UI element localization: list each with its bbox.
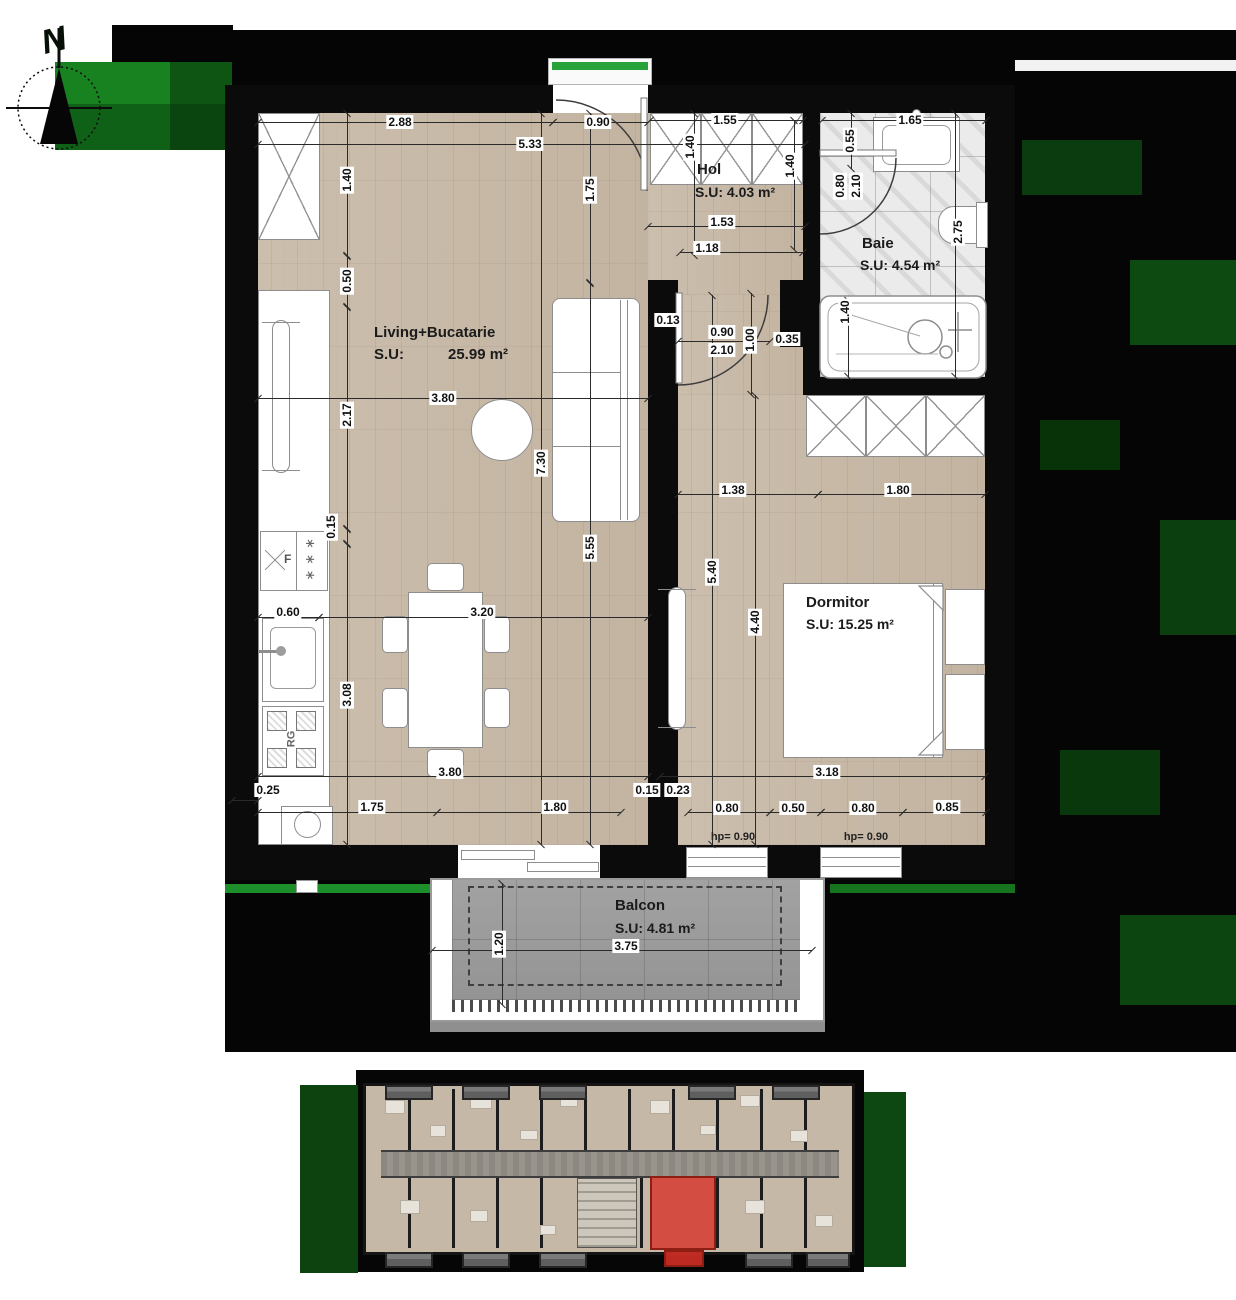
dimension-label: 0.80 <box>713 801 740 815</box>
overview-balcony <box>806 1252 850 1268</box>
room-label-baie: Baie <box>862 235 894 252</box>
faucet-icon <box>276 646 286 656</box>
overview-balcony <box>745 1252 793 1268</box>
overview-wall <box>540 1178 543 1248</box>
overview-furniture <box>815 1215 833 1227</box>
entrance-opening <box>553 85 648 113</box>
dimension-label: 1.38 <box>719 483 746 497</box>
overview-balcony <box>539 1085 587 1100</box>
bed-headboard-line <box>933 584 934 757</box>
overview-furniture <box>470 1210 488 1222</box>
dimension-label: 1.53 <box>708 215 735 229</box>
overview-furniture <box>385 1100 405 1114</box>
overview-wall <box>496 1178 499 1248</box>
chair <box>484 688 510 728</box>
nightstand <box>945 589 985 665</box>
overview-balcony <box>462 1252 510 1268</box>
dimension-label: 3.20 <box>468 605 495 619</box>
bedroom-wardrobe <box>926 395 985 457</box>
chair <box>427 563 464 591</box>
dimension-label: 0.50 <box>340 267 354 294</box>
overview-balcony <box>688 1085 736 1100</box>
sofa-cushion-line <box>553 372 621 373</box>
radiator <box>668 587 686 730</box>
dimension-label: 0.80 <box>833 172 847 199</box>
overview-balcony <box>772 1085 820 1100</box>
sliding-door-panel <box>461 850 535 860</box>
window-glass-line <box>688 857 766 858</box>
toilet-tank <box>976 202 988 248</box>
chair <box>382 688 408 728</box>
background-artifact <box>1120 915 1236 1005</box>
dimension-label: 2.10 <box>708 343 735 357</box>
background-artifact <box>864 1092 906 1267</box>
window <box>820 847 902 878</box>
overview-staircase <box>577 1178 637 1248</box>
overview-furniture <box>700 1125 716 1135</box>
room-area-baie: S.U: 4.54 m² <box>860 257 940 273</box>
sofa-backrest-line <box>627 300 628 520</box>
overview-wall <box>452 1089 455 1152</box>
window-glass-line <box>822 866 900 867</box>
radiator <box>272 320 290 473</box>
dimension-label: 2.10 <box>849 172 863 199</box>
overview-highlighted-balcony <box>664 1250 704 1267</box>
dimension-line <box>437 812 621 813</box>
overview-furniture <box>540 1225 556 1235</box>
room-label-hol: Hol <box>697 161 721 178</box>
dimension-label: 2.17 <box>340 401 354 428</box>
background-artifact <box>225 884 450 893</box>
background-artifact <box>170 62 232 150</box>
dimension-label: 7.30 <box>534 449 548 476</box>
sofa-cushion-line <box>553 446 621 447</box>
bedroom-wardrobe <box>866 395 926 457</box>
overview-furniture <box>790 1130 808 1142</box>
washbasin-bowl <box>882 125 951 165</box>
dimension-label: hp= 0.90 <box>842 830 890 844</box>
overview-corridor <box>381 1150 839 1178</box>
dimension-label: 3.08 <box>340 681 354 708</box>
wall-baie-left-upper <box>803 113 820 158</box>
dimension-label: 1.40 <box>783 152 797 179</box>
chair <box>382 616 408 653</box>
room-area-balcon: S.U: 4.81 m² <box>615 920 695 936</box>
burner-icon <box>296 748 316 768</box>
dimension-label: 2.88 <box>386 115 413 129</box>
overview-wall <box>640 1178 643 1248</box>
overview-furniture <box>650 1100 670 1114</box>
dimension-line <box>541 113 542 845</box>
dimension-label: 2.75 <box>951 218 965 245</box>
dimension-label: 1.40 <box>683 133 697 160</box>
dimension-label: 1.80 <box>884 483 911 497</box>
north-label: N <box>37 19 71 62</box>
window-glass-line <box>688 866 766 867</box>
background-artifact <box>1130 260 1236 345</box>
nightstand <box>945 674 985 750</box>
dimension-label: 1.65 <box>896 113 923 127</box>
room-area-su-living: S.U: <box>374 346 404 363</box>
dimension-label: 1.55 <box>711 113 738 127</box>
dimension-line <box>347 529 348 544</box>
dimension-label: 0.23 <box>664 783 691 797</box>
dimension-label: 0.90 <box>584 115 611 129</box>
room-area-dormitor: S.U: 15.25 m² <box>806 616 894 632</box>
washing-machine-drum <box>294 811 321 838</box>
dimension-line <box>258 812 437 813</box>
exterior-drain-box <box>296 880 318 893</box>
room-label-living: Living+Bucatarie <box>374 324 495 341</box>
background-artifact <box>552 62 648 70</box>
fridge-divider <box>296 532 297 590</box>
dimension-label: 5.55 <box>583 534 597 561</box>
dimension-label: 0.90 <box>708 325 735 339</box>
burner-icon <box>267 711 287 731</box>
dimension-label: 4.40 <box>748 608 762 635</box>
radiator-cap <box>658 727 696 728</box>
dimension-line <box>232 800 258 801</box>
wall-baie-left-lower <box>803 238 820 377</box>
window-glass-line <box>822 857 900 858</box>
overview-wall <box>628 1089 631 1152</box>
wall-living-bedroom <box>648 280 678 845</box>
dimension-line <box>794 120 795 250</box>
dimension-line <box>590 283 591 845</box>
wardrobe <box>258 113 320 240</box>
dimension-label: 1.18 <box>693 241 720 255</box>
overview-wall <box>804 1178 807 1248</box>
dimension-label: hp= 0.90 <box>709 830 757 844</box>
backdrop-black-topleft <box>112 25 233 67</box>
background-artifact <box>1015 60 1236 71</box>
dimension-label: 0.15 <box>324 513 338 540</box>
dimension-label: 3.80 <box>429 391 456 405</box>
dimension-label: 5.40 <box>705 558 719 585</box>
overview-furniture <box>745 1200 765 1214</box>
round-table <box>471 399 533 461</box>
dimension-label: 0.80 <box>849 801 876 815</box>
radiator-cap <box>262 470 300 471</box>
background-artifact <box>1160 520 1236 635</box>
dimension-label: 1.75 <box>583 176 597 203</box>
dimension-label: 0.85 <box>933 800 960 814</box>
dimension-label: 1.00 <box>743 326 757 353</box>
floorplan-page: F ∗∗∗ RG Living+Bucatarie S.U: 25.9 <box>0 0 1236 1300</box>
freezer-stars: ∗∗∗ <box>303 538 318 586</box>
dimension-label: 0.35 <box>773 332 800 346</box>
window <box>686 847 768 878</box>
overview-balcony <box>462 1085 510 1100</box>
stove-label: RG <box>285 731 297 748</box>
dimension-label: 1.20 <box>492 930 506 957</box>
overview-wall <box>716 1178 719 1248</box>
burner-icon <box>296 711 316 731</box>
room-label-dormitor: Dormitor <box>806 594 869 611</box>
overview-wall <box>672 1089 675 1152</box>
dimension-label: 0.50 <box>779 801 806 815</box>
overview-furniture <box>740 1095 760 1107</box>
overview-balcony <box>385 1085 433 1100</box>
background-artifact <box>300 1085 358 1273</box>
dimension-label: 0.60 <box>274 605 301 619</box>
dimension-label: 5.33 <box>516 137 543 151</box>
dimension-label: 1.80 <box>541 800 568 814</box>
dimension-label: 0.13 <box>654 313 681 327</box>
dimension-label: 3.80 <box>436 765 463 779</box>
background-artifact <box>1060 750 1160 815</box>
dimension-label: 0.55 <box>843 127 857 154</box>
burner-icon <box>267 748 287 768</box>
bedroom-wardrobe <box>806 395 866 457</box>
background-artifact <box>1040 420 1120 470</box>
kitchen-sink-basin <box>270 627 316 689</box>
overview-balcony <box>385 1252 433 1268</box>
room-area-hol: S.U: 4.03 m² <box>695 184 775 200</box>
dimension-label: 3.75 <box>612 939 639 953</box>
dimension-label: 1.40 <box>340 166 354 193</box>
overview-highlighted-unit <box>650 1176 716 1250</box>
chair <box>484 616 510 653</box>
sofa-backrest-line <box>620 300 621 520</box>
background-artifact <box>1022 140 1142 195</box>
fridge-label: F <box>284 552 291 566</box>
overview-furniture <box>430 1125 446 1137</box>
background-artifact <box>830 884 1015 893</box>
overview-wall <box>452 1178 455 1248</box>
dimension-label: 1.75 <box>358 800 385 814</box>
radiator-cap <box>658 589 696 590</box>
dimension-label: 1.40 <box>838 298 852 325</box>
radiator-cap <box>262 322 300 323</box>
dimension-line <box>678 494 818 495</box>
balcony-edge <box>430 1022 825 1032</box>
dimension-label: 3.18 <box>813 765 840 779</box>
overview-balcony <box>539 1252 587 1268</box>
overview-wall <box>760 1089 763 1152</box>
fridge-cross-icon <box>265 550 285 570</box>
dimension-label: 0.15 <box>633 783 660 797</box>
room-area-living: 25.99 m² <box>448 346 508 363</box>
room-label-balcon: Balcon <box>615 897 665 914</box>
overview-furniture <box>400 1200 420 1214</box>
sliding-door-panel <box>527 862 599 872</box>
overview-furniture <box>520 1130 538 1140</box>
dimension-label: 0.25 <box>254 783 281 797</box>
